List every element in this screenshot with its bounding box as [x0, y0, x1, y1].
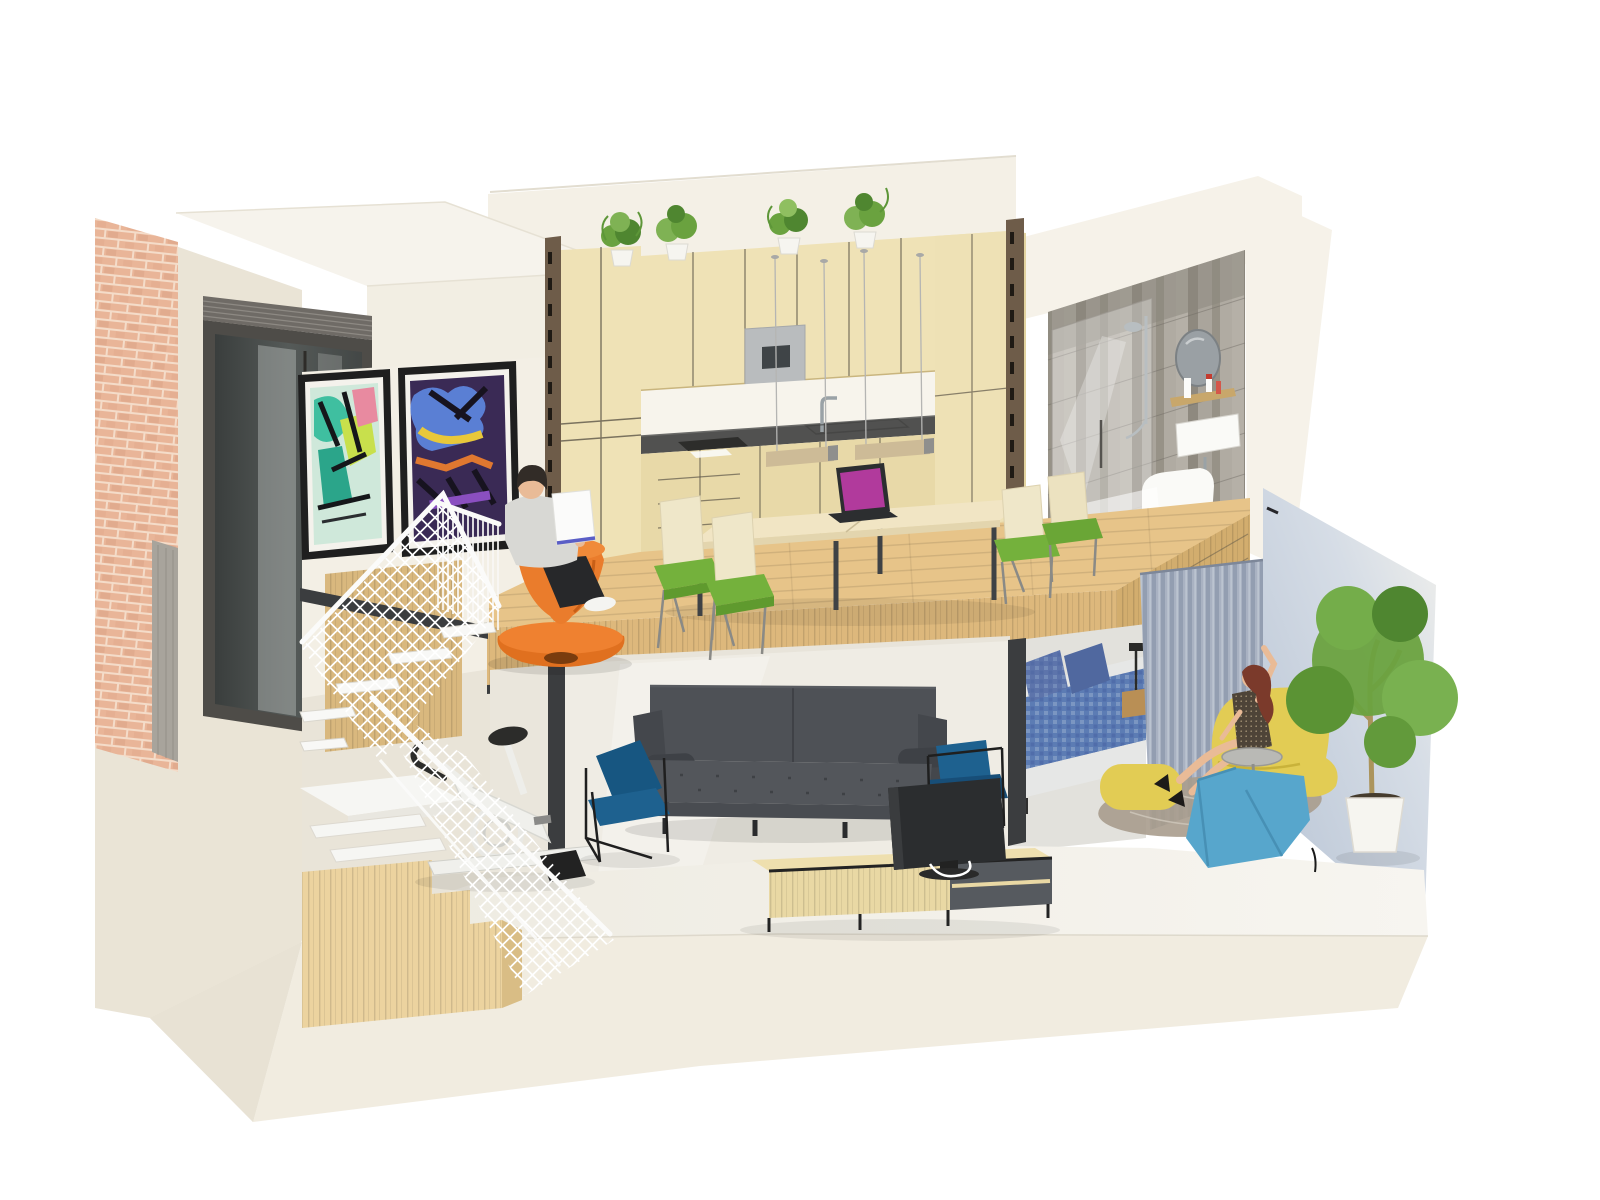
round-side-table [1222, 748, 1282, 766]
plant-pot [666, 244, 688, 260]
chair-base-hole [544, 652, 578, 664]
bottle-white [1184, 378, 1191, 398]
loft-cutaway-illustration [0, 0, 1600, 1200]
column-right [1006, 218, 1024, 524]
bottle-red-cap [1206, 374, 1212, 379]
ceiling-mount [771, 255, 779, 259]
render-canvas [0, 0, 1600, 1200]
plant-pot [854, 232, 876, 248]
chair-back [712, 512, 756, 584]
tree-foliage [1286, 666, 1354, 734]
chair-base-top [499, 622, 623, 654]
pendant-end-cap [924, 438, 934, 454]
graffiti-poster-left [298, 369, 394, 560]
white-pot [1346, 798, 1404, 852]
laptop-screen [840, 468, 885, 511]
foliage [779, 199, 797, 217]
ceiling-mount [916, 253, 924, 257]
steel-post-right [1008, 638, 1026, 846]
insulation-cut-layer [152, 540, 178, 762]
tv-back [888, 778, 1006, 870]
yellow-pouf [1100, 764, 1182, 810]
book [552, 490, 595, 545]
chair-back [660, 496, 704, 568]
bottle-small-red [1216, 381, 1221, 394]
tree-foliage [1372, 586, 1428, 642]
tree-foliage [1316, 586, 1380, 650]
ceiling-mount [860, 249, 868, 253]
foliage [855, 193, 873, 211]
glass-reflection [258, 345, 296, 716]
steel-post-left [548, 661, 565, 876]
plant-pot [611, 250, 633, 266]
pendant-end-cap [828, 445, 838, 461]
foliage [667, 205, 685, 223]
foliage [610, 212, 630, 232]
ceiling-mount [820, 259, 828, 263]
tree-foliage [1364, 716, 1416, 768]
plant-pot [778, 238, 800, 254]
console-shadow [740, 919, 1060, 941]
bedside-lamp-shade [1129, 643, 1143, 651]
